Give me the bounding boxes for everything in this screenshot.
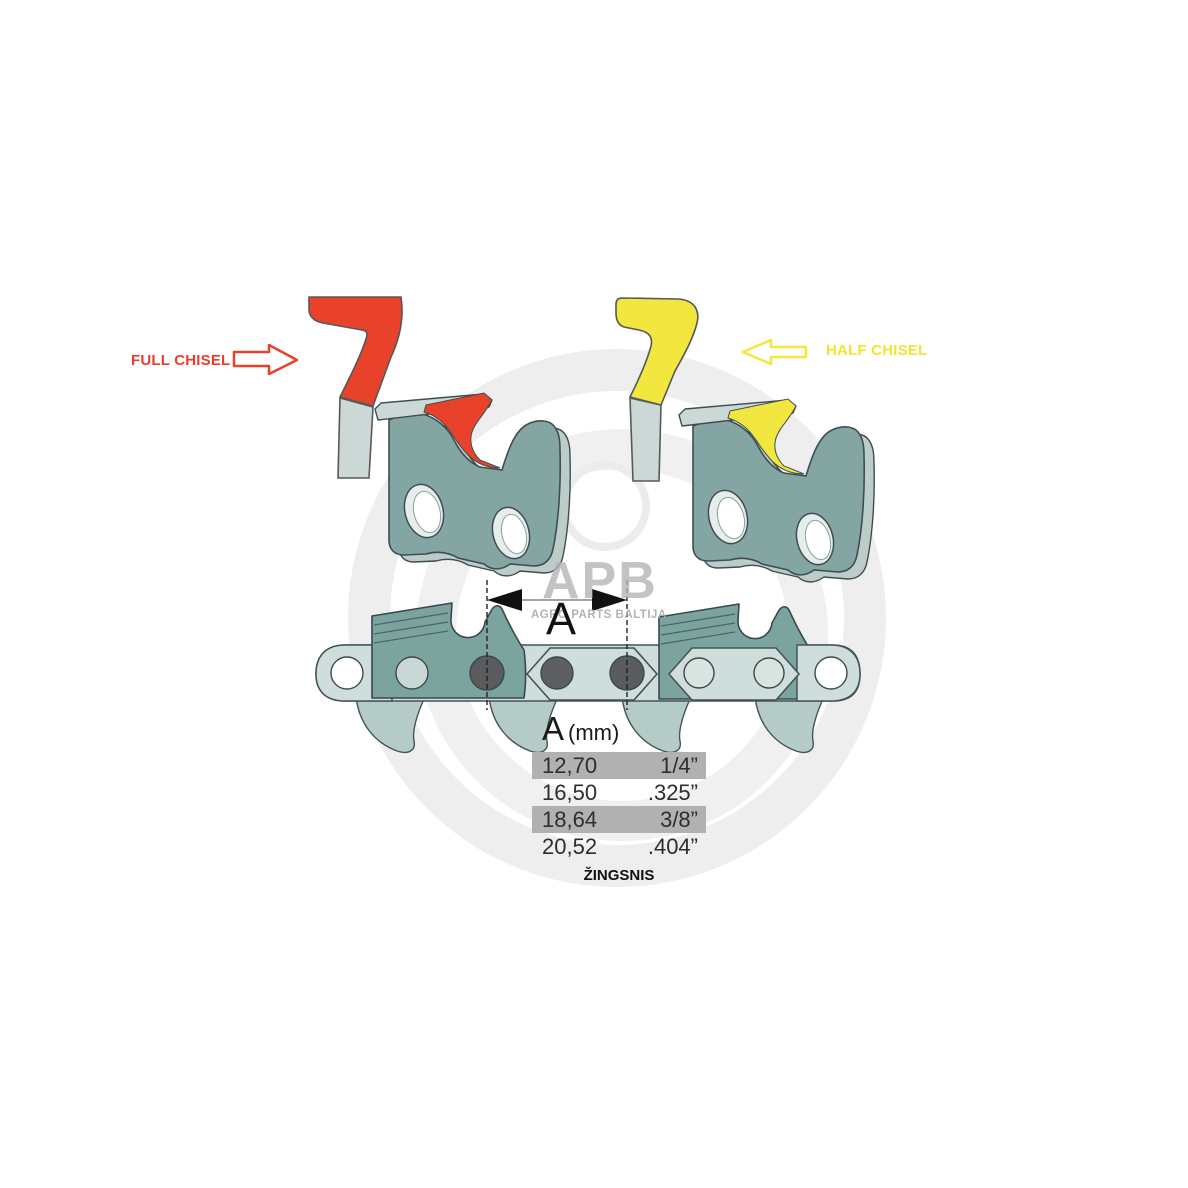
pitch-table-header: A(mm) bbox=[532, 710, 706, 748]
dimension-label: A bbox=[546, 593, 576, 645]
pitch-mm: 16,50 bbox=[542, 780, 597, 806]
table-row: 18,64 3/8” bbox=[532, 806, 706, 833]
diagram-canvas: FULL CHISEL HALF CHISEL APB AGRO PARTS B… bbox=[0, 0, 1188, 1188]
full-chisel-arrow-icon bbox=[234, 345, 297, 374]
rivet-hole bbox=[396, 657, 428, 689]
full-chisel-cutter-link bbox=[375, 393, 570, 576]
full-chisel-profile bbox=[234, 297, 402, 478]
pitch-table: A(mm) 12,70 1/4” 16,50 .325” 18,64 3/8” … bbox=[532, 710, 706, 884]
rivet-hole bbox=[331, 657, 363, 689]
rivet bbox=[541, 657, 573, 689]
chain-cutter-left bbox=[372, 603, 526, 698]
half-chisel-arrow-icon bbox=[743, 340, 806, 364]
pitch-table-caption: ŽINGSNIS bbox=[532, 867, 706, 884]
full-chisel-label: FULL CHISEL bbox=[131, 352, 230, 369]
table-row: 20,52 .404” bbox=[532, 833, 706, 860]
table-row: 12,70 1/4” bbox=[532, 752, 706, 779]
half-chisel-label: HALF CHISEL bbox=[826, 342, 927, 359]
pitch-inches: 1/4” bbox=[660, 753, 698, 779]
rivet-hole bbox=[815, 657, 847, 689]
rivet-hole bbox=[754, 658, 784, 688]
pitch-mm: 20,52 bbox=[542, 834, 597, 860]
table-row: 16,50 .325” bbox=[532, 779, 706, 806]
pitch-inches: .404” bbox=[648, 834, 698, 860]
pitch-inches: 3/8” bbox=[660, 807, 698, 833]
pitch-table-header-letter: A bbox=[542, 710, 564, 747]
pitch-mm: 12,70 bbox=[542, 753, 597, 779]
pitch-inches: .325” bbox=[648, 780, 698, 806]
rivet-hole bbox=[684, 658, 714, 688]
pitch-table-header-unit: (mm) bbox=[568, 720, 619, 745]
pitch-mm: 18,64 bbox=[542, 807, 597, 833]
half-chisel-cutter-link bbox=[679, 399, 874, 582]
